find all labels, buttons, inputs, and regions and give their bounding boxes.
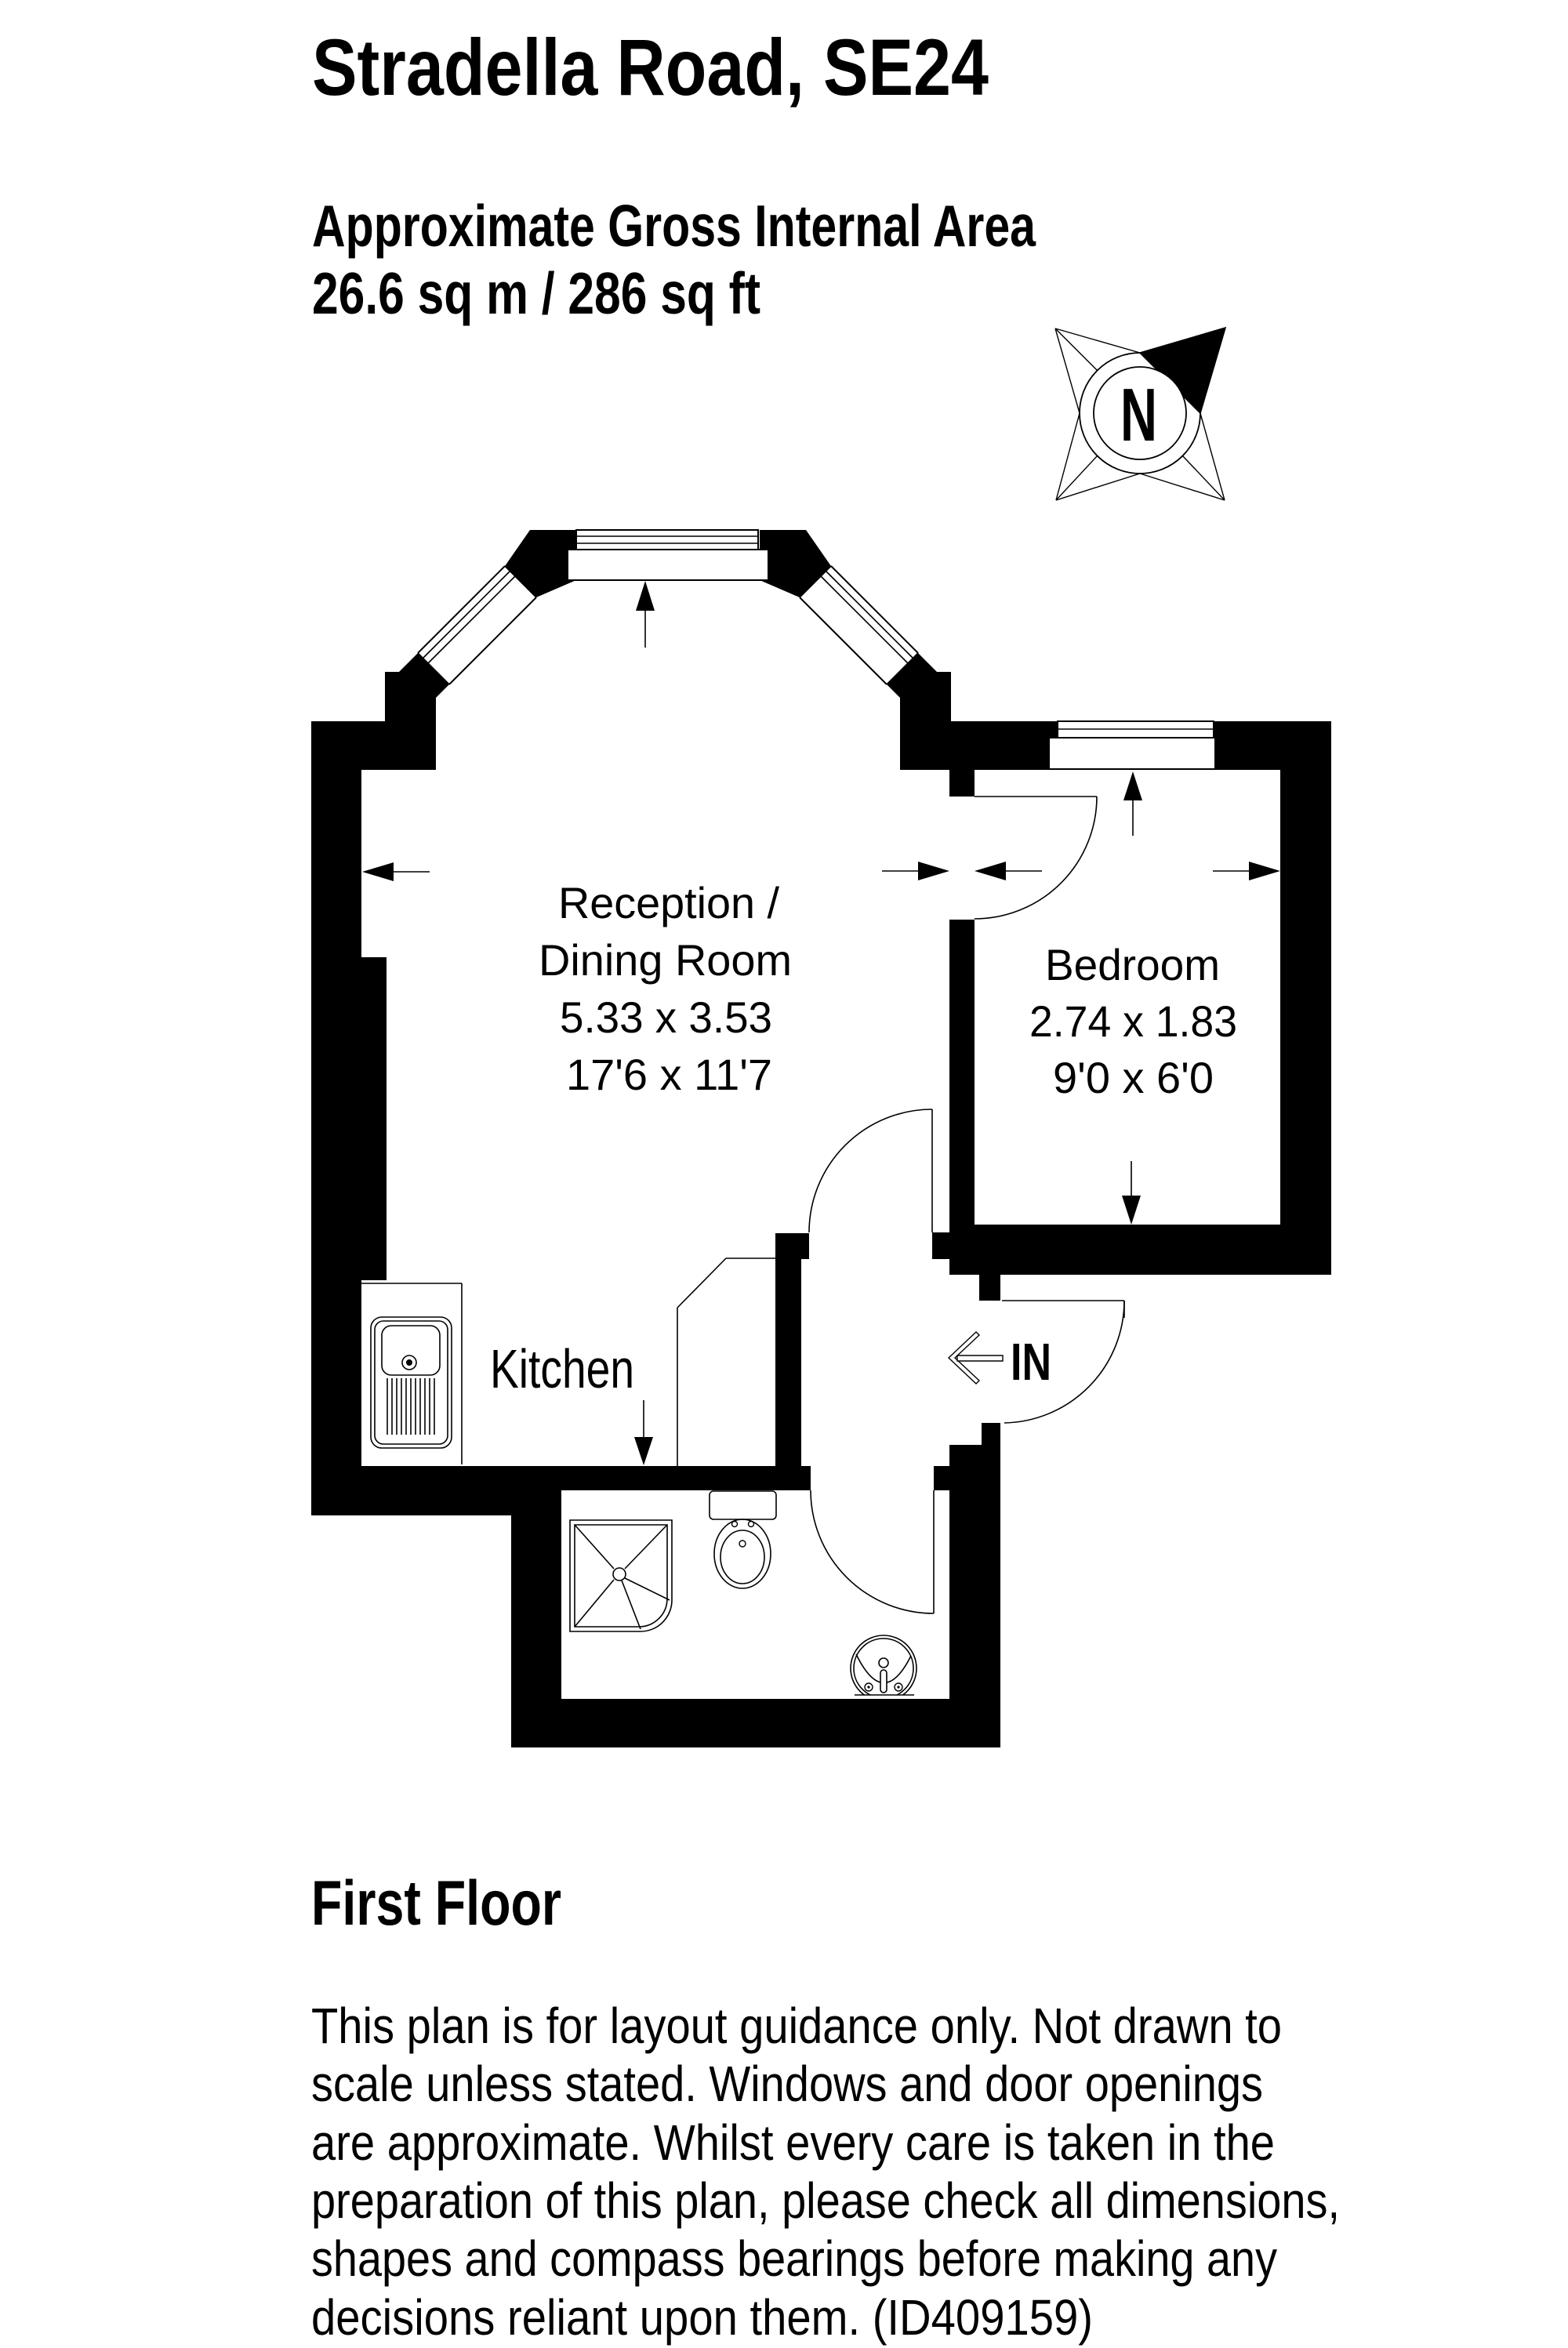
svg-text:Approximate Gross Internal Are: Approximate Gross Internal Area — [312, 193, 1036, 259]
svg-text:Reception /: Reception / — [558, 878, 779, 927]
svg-text:preparation of this plan, plea: preparation of this plan, please check a… — [311, 2172, 1340, 2229]
svg-text:Dining Room: Dining Room — [539, 935, 792, 985]
svg-text:9'0 x 6'0: 9'0 x 6'0 — [1053, 1053, 1214, 1102]
svg-text:2.74 x 1.83: 2.74 x 1.83 — [1029, 996, 1237, 1046]
svg-text:N: N — [1120, 373, 1157, 457]
svg-text:Stradella Road, SE24: Stradella Road, SE24 — [312, 23, 989, 112]
svg-text:5.33 x 3.53: 5.33 x 3.53 — [560, 993, 772, 1042]
svg-text:This plan is for layout guidan: This plan is for layout guidance only. N… — [311, 1998, 1282, 2054]
svg-text:First Floor: First Floor — [311, 1868, 561, 1939]
svg-text:decisions reliant upon them. (: decisions reliant upon them. (ID409159) — [311, 2289, 1093, 2346]
svg-text:Kitchen: Kitchen — [490, 1338, 634, 1399]
svg-text:are approximate. Whilst every: are approximate. Whilst every care is ta… — [311, 2114, 1275, 2171]
svg-text:17'6 x 11'7: 17'6 x 11'7 — [566, 1050, 772, 1099]
svg-text:shapes and compass bearings be: shapes and compass bearings before makin… — [311, 2230, 1277, 2287]
svg-text:scale unless stated. Windows a: scale unless stated. Windows and door op… — [311, 2056, 1263, 2112]
svg-text:26.6 sq m / 286 sq ft: 26.6 sq m / 286 sq ft — [312, 260, 760, 326]
svg-text:Bedroom: Bedroom — [1045, 940, 1220, 989]
svg-text:IN: IN — [1011, 1333, 1051, 1392]
